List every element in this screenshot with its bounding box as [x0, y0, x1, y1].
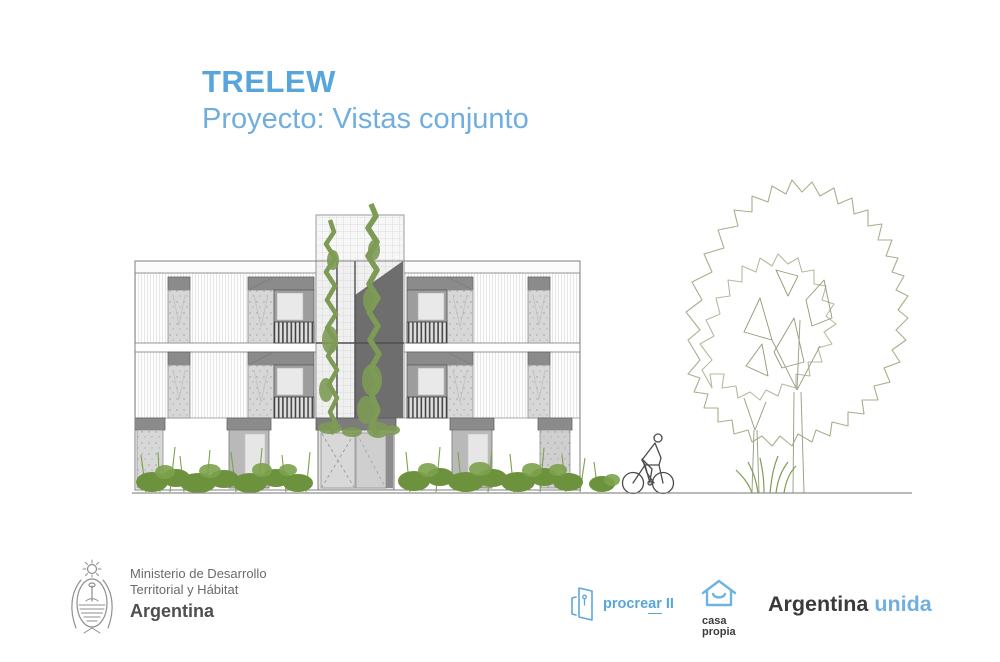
argentina-unida-blue: unida: [874, 592, 931, 616]
casa-propia-line1: casa: [702, 616, 744, 627]
ministry-text: Ministerio de Desarrollo Territorial y H…: [130, 566, 267, 622]
argentina-coat-of-arms-icon: [64, 556, 120, 642]
procrear-prefix: procre: [603, 596, 648, 612]
cyclist: [623, 434, 674, 494]
argentina-unida-dark: Argentina: [768, 592, 868, 616]
tree: [686, 180, 908, 493]
ministry-line2: Territorial y Hábitat: [130, 582, 267, 598]
casa-propia-logo: casa propia: [698, 577, 744, 637]
procrear-suffix: II: [666, 596, 674, 612]
casa-propia-wordmark: casa propia: [702, 616, 744, 637]
argentina-unida-wordmark: Argentinaunida: [768, 592, 932, 617]
ministry-logo: Ministerio de Desarrollo Territorial y H…: [64, 556, 267, 642]
open-door-icon: [570, 585, 596, 623]
smiling-house-icon: [698, 577, 740, 609]
procrear-underlined: ar: [648, 596, 662, 614]
building-elevation: [135, 215, 580, 490]
casa-propia-line2: propia: [702, 627, 744, 638]
procrear-logo: procrearII: [570, 585, 674, 623]
ministry-line1: Ministerio de Desarrollo: [130, 566, 267, 582]
ministry-country: Argentina: [130, 601, 267, 622]
procrear-wordmark: procrearII: [603, 596, 674, 612]
presentation-slide: TRELEW Proyecto: Vistas conjunto: [0, 0, 1000, 662]
